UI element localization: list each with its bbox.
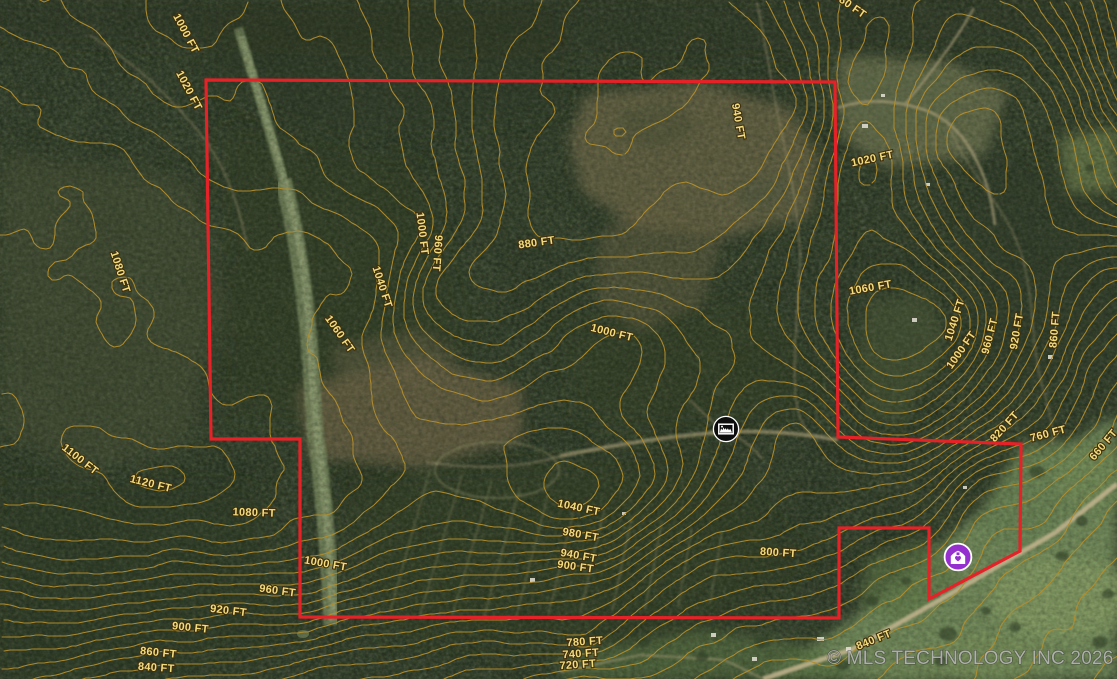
svg-text:840 FT: 840 FT [138, 661, 175, 676]
svg-text:960 FT: 960 FT [430, 235, 445, 272]
svg-text:© MLS TECHNOLOGY INC 2026: © MLS TECHNOLOGY INC 2026 [827, 648, 1114, 669]
svg-text:800 FT: 800 FT [760, 546, 797, 561]
svg-text:720 FT: 720 FT [559, 658, 596, 673]
svg-text:1080 FT: 1080 FT [232, 506, 275, 519]
